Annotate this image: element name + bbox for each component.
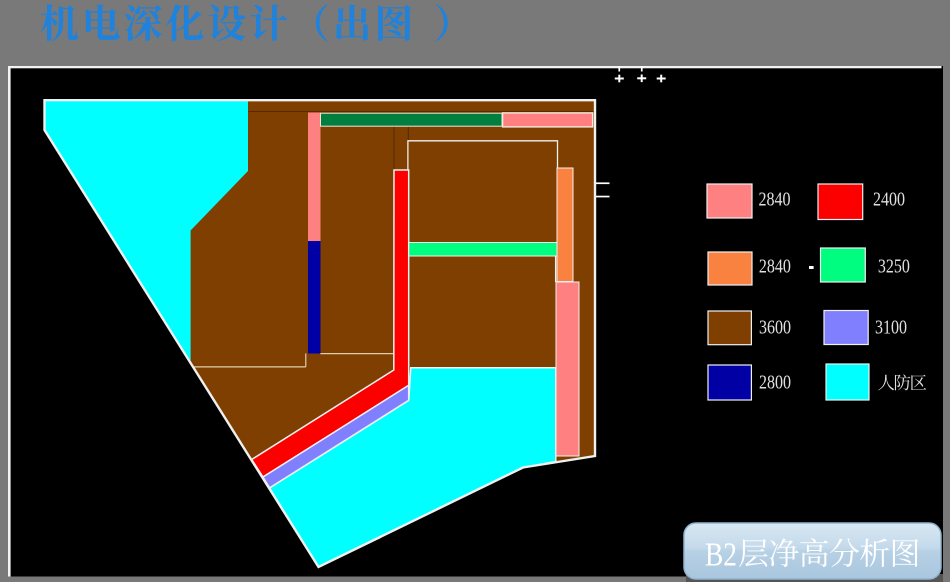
svg-text:3100: 3100 xyxy=(875,317,907,339)
svg-text:2840: 2840 xyxy=(759,256,791,278)
svg-text:2400: 2400 xyxy=(873,189,905,211)
svg-text:2840: 2840 xyxy=(759,189,791,211)
svg-text:2800: 2800 xyxy=(759,372,791,394)
svg-text:3600: 3600 xyxy=(759,317,791,339)
svg-text:3250: 3250 xyxy=(878,256,910,278)
svg-text:B2: B2 xyxy=(705,537,737,574)
